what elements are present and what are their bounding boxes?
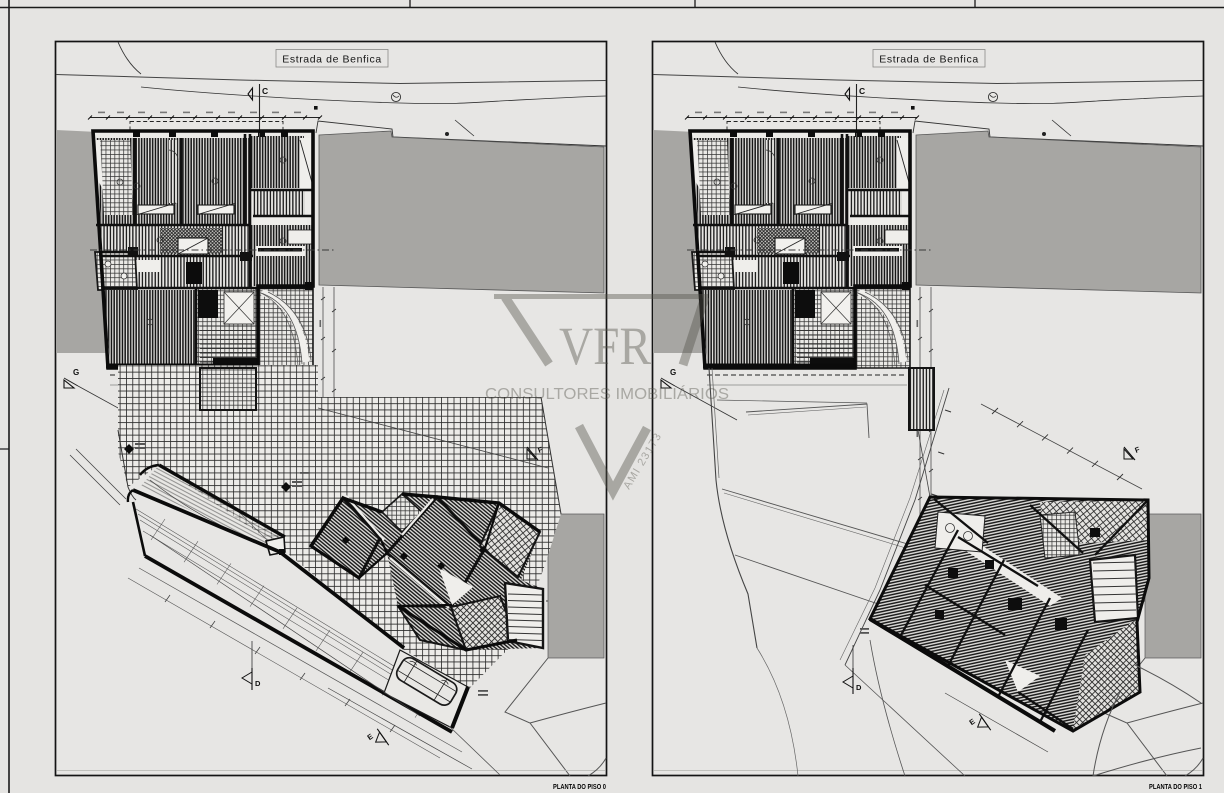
svg-text:PLANTA DO PISO 1: PLANTA DO PISO 1 xyxy=(1149,784,1202,791)
svg-text:C: C xyxy=(262,86,268,96)
svg-text:D: D xyxy=(255,679,261,688)
svg-text:CONSULTORES IMOBILIÁRIOS: CONSULTORES IMOBILIÁRIOS xyxy=(485,384,729,403)
svg-text:D: D xyxy=(856,683,862,692)
svg-text:VFR: VFR xyxy=(559,316,651,376)
svg-text:Estrada de Benfica: Estrada de Benfica xyxy=(282,54,382,66)
svg-text:PLANTA DO PISO 0: PLANTA DO PISO 0 xyxy=(553,784,606,791)
svg-text:G: G xyxy=(73,368,79,377)
